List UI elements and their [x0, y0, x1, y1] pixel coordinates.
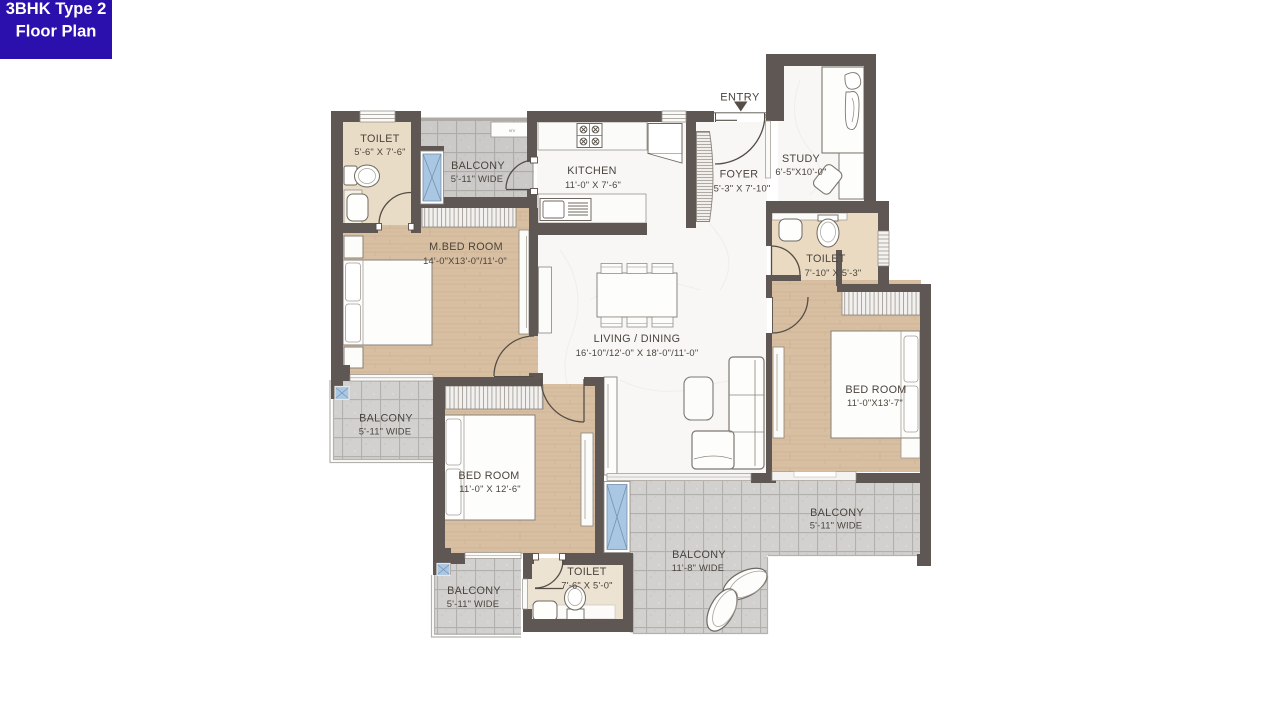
svg-text:KITCHEN: KITCHEN [567, 165, 617, 177]
svg-text:TOILET: TOILET [360, 133, 400, 145]
svg-text:TOILET: TOILET [567, 566, 607, 578]
svg-text:6'-5"X10'-0": 6'-5"X10'-0" [775, 166, 826, 177]
svg-text:11'-0" X 7'-6": 11'-0" X 7'-6" [565, 179, 621, 190]
svg-text:7'-10" X 5'-3": 7'-10" X 5'-3" [805, 267, 862, 278]
svg-text:BALCONY: BALCONY [451, 160, 505, 172]
svg-text:5'-11" WIDE: 5'-11" WIDE [447, 598, 499, 609]
svg-text:11'-0"X13'-7": 11'-0"X13'-7" [847, 397, 903, 408]
svg-text:LIVING / DINING: LIVING / DINING [594, 333, 681, 345]
svg-text:16'-10"/12'-0" X 18'-0"/11'-0": 16'-10"/12'-0" X 18'-0"/11'-0" [576, 347, 699, 358]
svg-text:11'-8" WIDE: 11'-8" WIDE [672, 562, 724, 573]
svg-text:STUDY: STUDY [782, 153, 820, 165]
svg-text:BALCONY: BALCONY [359, 413, 413, 425]
svg-text:TOILET: TOILET [806, 253, 846, 265]
svg-text:BALCONY: BALCONY [672, 549, 726, 561]
svg-text:vrv: vrv [509, 128, 516, 133]
svg-text:BED ROOM: BED ROOM [845, 384, 906, 396]
svg-text:BALCONY: BALCONY [447, 585, 501, 597]
svg-text:FOYER: FOYER [720, 169, 759, 181]
svg-text:BED ROOM: BED ROOM [458, 470, 519, 482]
svg-text:5'-11" WIDE: 5'-11" WIDE [359, 426, 411, 437]
svg-text:5'-3" X 7'-10": 5'-3" X 7'-10" [714, 183, 771, 194]
svg-text:BALCONY: BALCONY [810, 507, 864, 519]
svg-text:M.BED ROOM: M.BED ROOM [429, 241, 503, 253]
svg-text:5'-6" X 7'-6": 5'-6" X 7'-6" [354, 146, 405, 157]
svg-text:3BHK Type 2: 3BHK Type 2 [6, 0, 107, 18]
svg-text:11'-0" X 12'-6": 11'-0" X 12'-6" [459, 483, 521, 494]
svg-text:5'-11" WIDE: 5'-11" WIDE [451, 173, 503, 184]
svg-text:14'-0"X13'-0"/11'-0": 14'-0"X13'-0"/11'-0" [423, 255, 507, 266]
svg-text:7'-6" X 5'-0": 7'-6" X 5'-0" [561, 580, 612, 591]
svg-text:5'-11" WIDE: 5'-11" WIDE [810, 520, 862, 531]
svg-text:Floor Plan: Floor Plan [16, 23, 97, 41]
